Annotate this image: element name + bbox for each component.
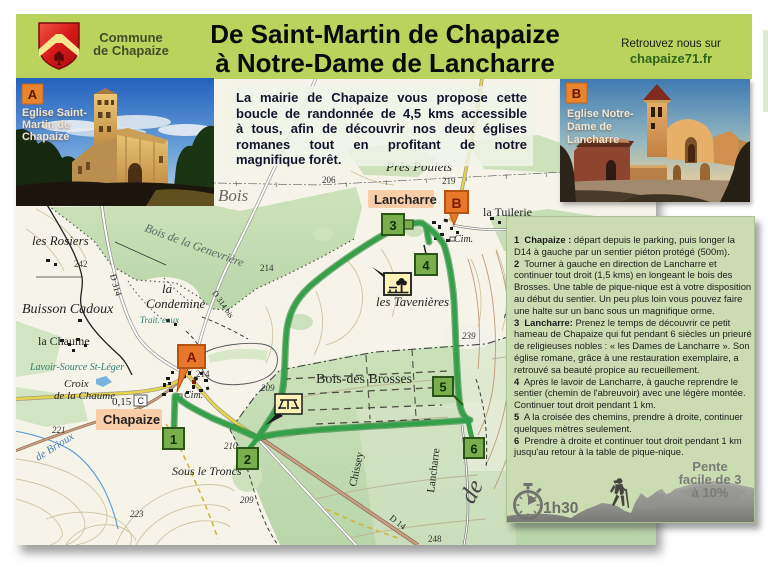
svg-text:248: 248 bbox=[428, 534, 442, 544]
svg-text:3: 3 bbox=[389, 218, 396, 233]
svg-text:242: 242 bbox=[74, 259, 88, 269]
svg-text:de la Chaume: de la Chaume bbox=[54, 390, 115, 402]
svg-text:A: A bbox=[186, 349, 196, 365]
svg-text:Martin de: Martin de bbox=[22, 119, 70, 131]
svg-text:219: 219 bbox=[442, 176, 456, 186]
svg-text:Cim.: Cim. bbox=[184, 390, 203, 401]
svg-text:Croix: Croix bbox=[64, 378, 89, 390]
svg-text:210: 210 bbox=[224, 441, 238, 451]
svg-text:C: C bbox=[138, 396, 145, 406]
svg-text:Cim.: Cim. bbox=[454, 234, 473, 245]
svg-text:223: 223 bbox=[130, 509, 144, 519]
svg-text:Sous le Troncs: Sous le Troncs bbox=[172, 464, 242, 478]
svg-text:B: B bbox=[451, 195, 461, 211]
svg-text:214: 214 bbox=[260, 263, 274, 273]
svg-text:Lancharre: Lancharre bbox=[374, 192, 437, 207]
svg-text:6: 6 bbox=[470, 442, 477, 457]
svg-text:la Chaume: la Chaume bbox=[38, 334, 90, 348]
svg-text:la: la bbox=[162, 281, 173, 296]
svg-text:les Tavenières: les Tavenières bbox=[376, 294, 449, 309]
svg-text:A: A bbox=[28, 87, 38, 102]
svg-text:209: 209 bbox=[240, 495, 254, 505]
svg-text:239: 239 bbox=[462, 331, 476, 341]
svg-text:206: 206 bbox=[322, 175, 336, 185]
svg-text:Chapaize: Chapaize bbox=[22, 131, 69, 143]
svg-text:Trait. eaux: Trait. eaux bbox=[140, 315, 179, 325]
svg-text:Eglise Saint-: Eglise Saint- bbox=[22, 107, 87, 119]
svg-text:214: 214 bbox=[196, 369, 210, 379]
svg-text:Eglise Notre-: Eglise Notre- bbox=[567, 108, 634, 120]
svg-text:Bois: Bois bbox=[218, 186, 249, 205]
svg-text:Condemine: Condemine bbox=[146, 296, 205, 311]
svg-text:Buisson Cadoux: Buisson Cadoux bbox=[22, 302, 114, 317]
svg-text:Chapaize: Chapaize bbox=[103, 412, 160, 427]
svg-text:2: 2 bbox=[244, 452, 251, 467]
svg-text:Bois-des Brosses: Bois-des Brosses bbox=[316, 372, 412, 387]
svg-text:1: 1 bbox=[170, 432, 177, 447]
svg-text:5: 5 bbox=[439, 380, 446, 395]
svg-text:Lavoir-Source St-Léger: Lavoir-Source St-Léger bbox=[29, 362, 124, 373]
svg-text:Dame de: Dame de bbox=[567, 121, 612, 133]
svg-text:les Rosiers: les Rosiers bbox=[32, 233, 89, 248]
svg-text:B: B bbox=[572, 86, 581, 101]
svg-text:4: 4 bbox=[422, 258, 430, 273]
svg-text:209: 209 bbox=[261, 383, 275, 393]
svg-text:Lancharre: Lancharre bbox=[567, 134, 619, 146]
svg-text:0,15: 0,15 bbox=[112, 396, 132, 408]
